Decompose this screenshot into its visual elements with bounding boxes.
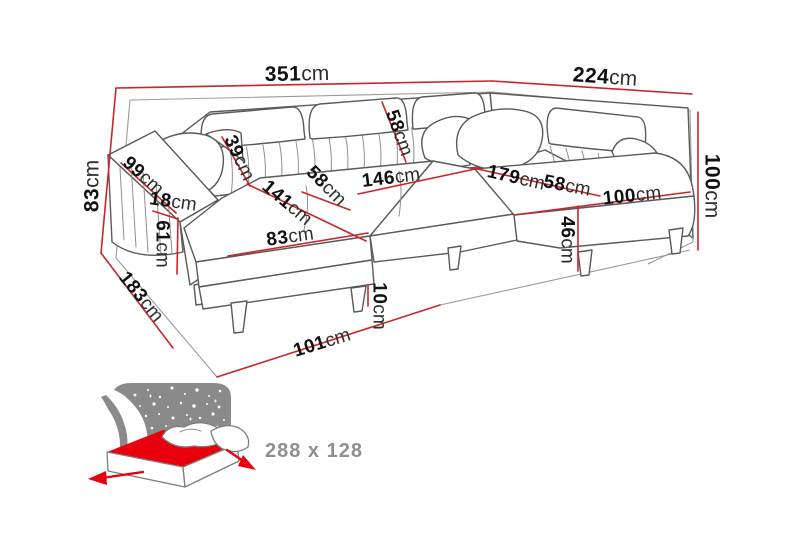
- diagram-canvas: [0, 0, 800, 533]
- bed-size-label: 288 x 128: [265, 440, 363, 463]
- leg: [351, 286, 366, 312]
- sofa-bed-icon: [88, 383, 256, 487]
- backdrop-sliver: [101, 395, 128, 450]
- leg: [578, 250, 592, 276]
- pillow-corner-front: [457, 109, 543, 169]
- leg: [448, 246, 461, 270]
- sofa-dimension-diagram: 351cm224cm83cm99cm18cm61cm39cm141cm58cm5…: [0, 0, 800, 533]
- leg: [669, 228, 683, 254]
- leg: [231, 301, 247, 333]
- sofa-drawing: [108, 93, 695, 333]
